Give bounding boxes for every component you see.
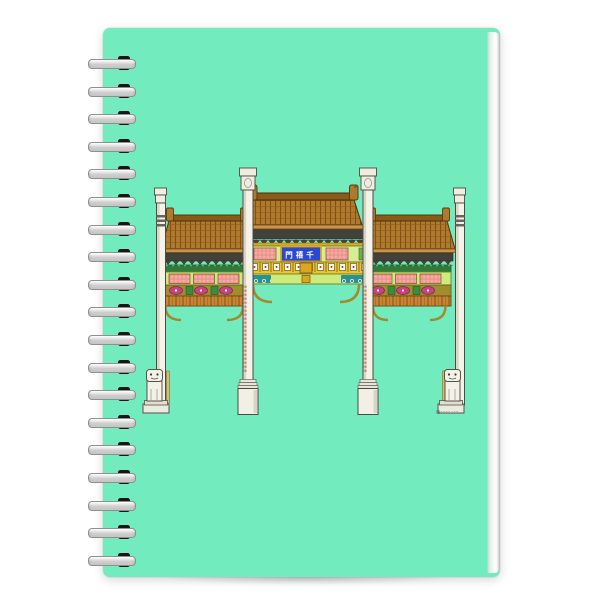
coil-wire [88, 307, 136, 317]
product-photo: 門禧千 [0, 0, 600, 600]
binding-coil [88, 360, 138, 374]
coil-wire [88, 197, 136, 207]
binding-coil [88, 553, 138, 567]
coil-wire [88, 528, 136, 538]
coil-wire [88, 280, 136, 290]
binding-coil [88, 194, 138, 208]
paifang-illustration: 門禧千 [140, 165, 480, 420]
coil-wire [88, 473, 136, 483]
ridge-ornament [443, 208, 450, 221]
central-roof [243, 185, 363, 229]
binding-coil [88, 139, 138, 153]
binding-coil [88, 498, 138, 512]
left-roof [160, 208, 254, 253]
binding-coil [88, 470, 138, 484]
coil-wire [88, 363, 136, 373]
binding-coil [88, 387, 138, 401]
binding-coil [88, 442, 138, 456]
coil-wire [88, 390, 136, 400]
coil-wire [88, 87, 136, 97]
binding-coil [88, 84, 138, 98]
binding-coil [88, 304, 138, 318]
left-pavilion [160, 208, 254, 320]
binding-coil [88, 222, 138, 236]
coil-wire [88, 169, 136, 179]
binding-coil [88, 166, 138, 180]
binding-coil [88, 332, 138, 346]
coil-wire [88, 59, 136, 69]
binding-coil [88, 415, 138, 429]
artist-signature: @······ ···· [436, 409, 459, 415]
column-inscription [244, 285, 247, 373]
coil-wire [88, 418, 136, 428]
coil-wire [88, 335, 136, 345]
plaque-text: 門禧千 [285, 250, 317, 260]
gate-plaque: 門禧千 [281, 247, 321, 262]
coil-wire [88, 556, 136, 566]
central-pavilion: 門禧千 [243, 185, 366, 302]
coil-wire [88, 142, 136, 152]
ridge-ornament [167, 208, 174, 221]
lion-statue-right [438, 370, 464, 414]
page-edges [487, 32, 500, 573]
coil-wire [88, 252, 136, 262]
coil-wire [88, 225, 136, 235]
coil-wire [88, 114, 136, 124]
binding-coil [88, 56, 138, 70]
coil-wire [88, 445, 136, 455]
binding-coil [88, 249, 138, 263]
coil-wire [88, 501, 136, 511]
right-pavilion [362, 208, 456, 320]
binding-coil [88, 111, 138, 125]
spiral-binding [88, 56, 142, 578]
binding-coil [88, 277, 138, 291]
binding-coil [88, 525, 138, 539]
column-inscription [364, 285, 367, 373]
right-roof [362, 208, 456, 253]
